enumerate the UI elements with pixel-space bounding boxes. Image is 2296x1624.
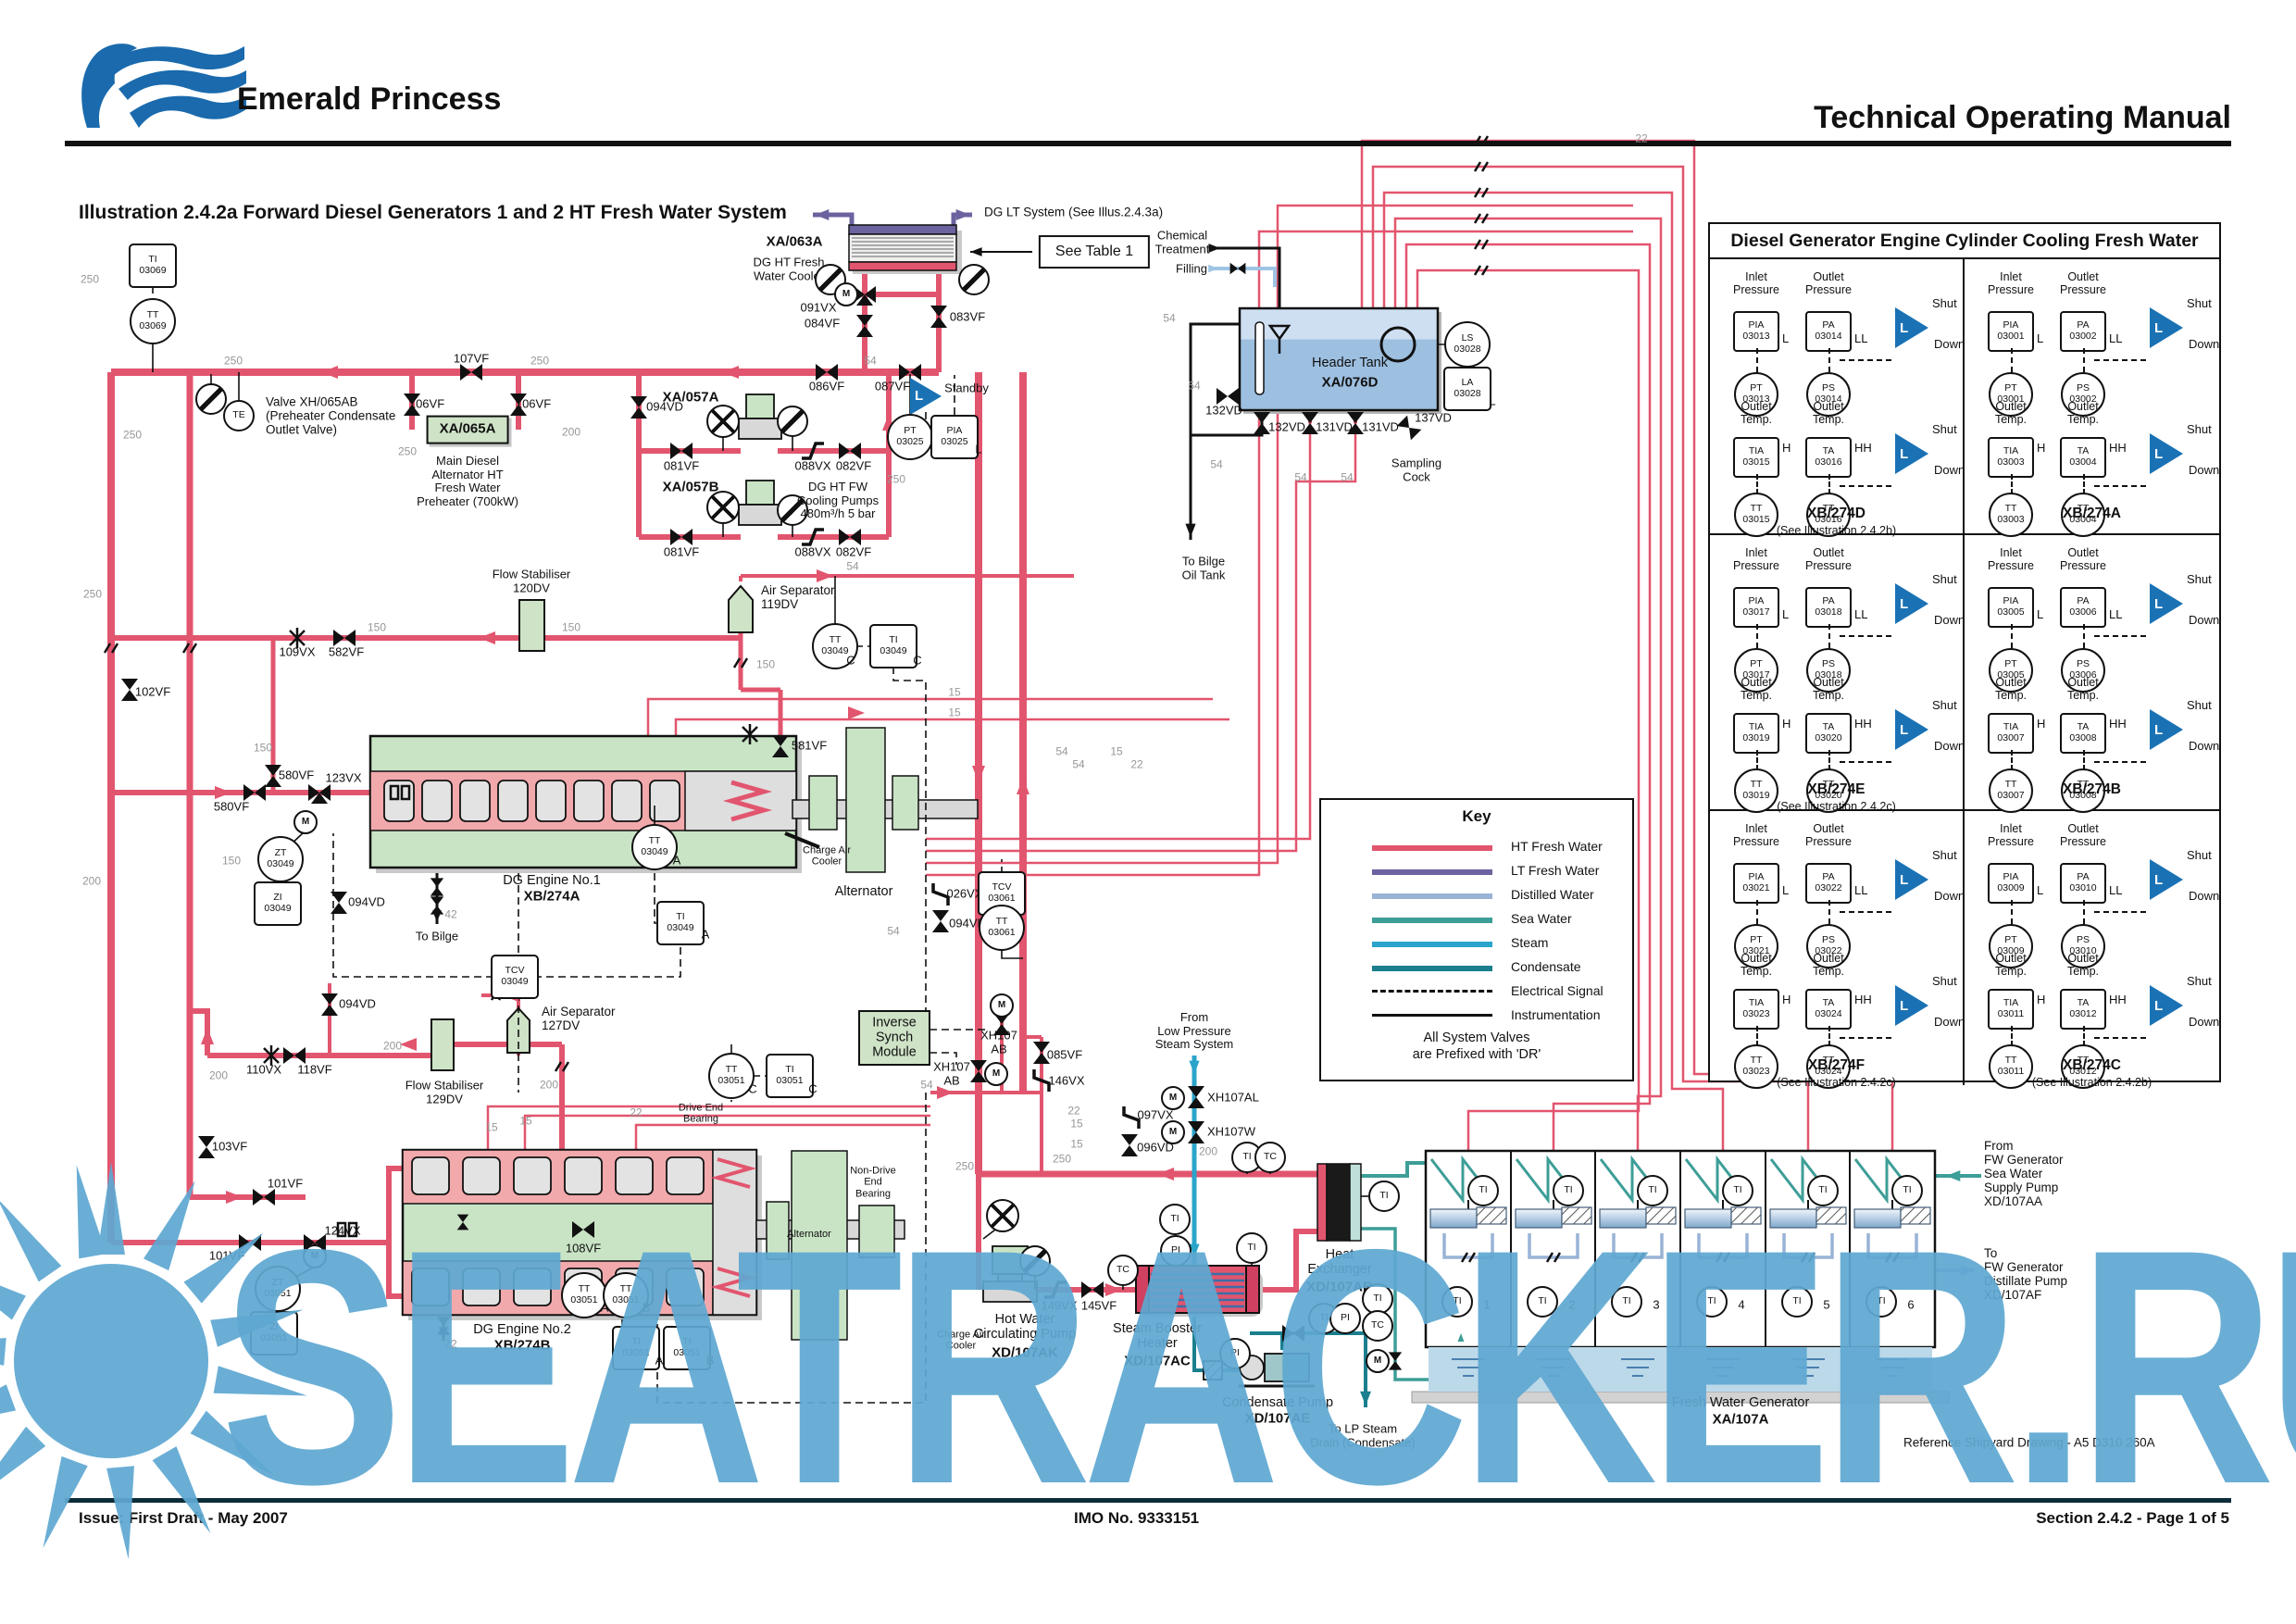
- manual-title: Technical Operating Manual: [1814, 100, 2231, 136]
- panel-cell-xb274c: Inlet Pressure Outlet Pressure PIA 03009…: [1965, 811, 2219, 1085]
- tia-tag: TIA 03019: [1733, 713, 1779, 754]
- key-swatch-sw: [1372, 918, 1492, 923]
- key-title: Key: [1321, 807, 1632, 826]
- pa-tag: PA 03010: [2060, 863, 2106, 904]
- key-swatch-steam: [1372, 942, 1492, 947]
- pa-tag: PA 03006: [2060, 587, 2106, 628]
- key-label: HT Fresh Water: [1511, 839, 1603, 854]
- key-label: LT Fresh Water: [1511, 863, 1599, 878]
- ta-tag: TA 03008: [2060, 713, 2106, 754]
- ta-tag: TA 03016: [1805, 437, 1852, 478]
- panel-cell-xb274d: Inlet Pressure Outlet Pressure PIA 03013…: [1710, 259, 1965, 535]
- key-label: Distilled Water: [1511, 887, 1594, 902]
- shutdown-triangle: L: [1895, 433, 1928, 474]
- key-swatch-lt: [1372, 869, 1492, 875]
- pa-tag: PA 03022: [1805, 863, 1852, 904]
- key-swatch-dw: [1372, 893, 1492, 899]
- shutdown-triangle: L: [1895, 583, 1928, 624]
- key-label: Electrical Signal: [1511, 983, 1603, 998]
- engine-code: XB/274E: [1710, 781, 1963, 798]
- princess-cruises-logo: [76, 43, 252, 135]
- engine-code: XB/274F: [1710, 1057, 1963, 1074]
- key-label: Condensate: [1511, 959, 1581, 974]
- tia-tag: TIA 03023: [1733, 989, 1779, 1030]
- key-label: Steam: [1511, 935, 1548, 950]
- shutdown-triangle: L: [2150, 307, 2183, 348]
- ta-tag: TA 03020: [1805, 713, 1852, 754]
- tia-tag: TIA 03011: [1988, 989, 2034, 1030]
- shutdown-triangle: L: [2150, 985, 2183, 1026]
- pia-tag: PIA 03009: [1988, 863, 2034, 904]
- pa-tag: PA 03018: [1805, 587, 1852, 628]
- shutdown-triangle: L: [2150, 859, 2183, 900]
- pia-tag: PIA 03013: [1733, 311, 1779, 352]
- shutdown-triangle: L: [1895, 985, 1928, 1026]
- footer-imo: IMO No. 9333151: [1074, 1509, 1199, 1528]
- ship-name: Emerald Princess: [237, 81, 501, 118]
- engine-code: XB/274D: [1710, 506, 1963, 522]
- header-rule: [65, 141, 2231, 146]
- footer-section: Section 2.4.2 - Page 1 of 5: [2036, 1509, 2229, 1528]
- panel-cell-xb274f: Inlet Pressure Outlet Pressure PIA 03021…: [1710, 811, 1965, 1085]
- key-swatch-elec: [1372, 990, 1492, 993]
- illustration-title: Illustration 2.4.2a Forward Diesel Gener…: [79, 202, 787, 224]
- pia-tag: PIA 03005: [1988, 587, 2034, 628]
- pia-tag: PIA 03021: [1733, 863, 1779, 904]
- ta-tag: TA 03024: [1805, 989, 1852, 1030]
- ta-tag: TA 03012: [2060, 989, 2106, 1030]
- engine-code: XB/274C: [1965, 1057, 2219, 1074]
- shutdown-triangle: L: [1895, 307, 1928, 348]
- shutdown-triangle: L: [1895, 859, 1928, 900]
- engine-code: XB/274A: [1965, 506, 2219, 522]
- key-label: Sea Water: [1511, 911, 1572, 926]
- shutdown-triangle: L: [2150, 433, 2183, 474]
- pa-tag: PA 03002: [2060, 311, 2106, 352]
- cooling-fw-panel: Diesel Generator Engine Cylinder Cooling…: [1708, 222, 2221, 1082]
- footer-rule: [65, 1498, 2231, 1503]
- pia-tag: PIA 03017: [1733, 587, 1779, 628]
- key-swatch-ht: [1372, 845, 1492, 851]
- tia-tag: TIA 03007: [1988, 713, 2034, 754]
- page: Emerald Princess Technical Operating Man…: [0, 0, 2296, 1624]
- see-ref: (See Illustration 2.4.2c): [1710, 1076, 1963, 1089]
- panel-title: Diesel Generator Engine Cylinder Cooling…: [1710, 224, 2219, 259]
- ta-tag: TA 03004: [2060, 437, 2106, 478]
- pia-tag: PIA 03001: [1988, 311, 2034, 352]
- key-swatch-cond: [1372, 966, 1492, 971]
- panel-cell-xb274a: Inlet Pressure Outlet Pressure PIA 03001…: [1965, 259, 2219, 535]
- see-ref: (See Illustration 2.4.2b): [1965, 1076, 2219, 1089]
- tia-tag: TIA 03015: [1733, 437, 1779, 478]
- shutdown-triangle: L: [2150, 583, 2183, 624]
- key-note: All System Valves are Prefixed with 'DR': [1321, 1030, 1632, 1063]
- key-legend: Key HT Fresh Water LT Fresh Water Distil…: [1319, 798, 1634, 1081]
- shutdown-triangle: L: [1895, 709, 1928, 750]
- pa-tag: PA 03014: [1805, 311, 1852, 352]
- engine-code: XB/274B: [1965, 781, 2219, 798]
- panel-cell-xb274b: Inlet Pressure Outlet Pressure PIA 03005…: [1965, 535, 2219, 811]
- footer-issue: Issue: First Draft - May 2007: [79, 1509, 288, 1528]
- tia-tag: TIA 03003: [1988, 437, 2034, 478]
- panel-cell-xb274e: Inlet Pressure Outlet Pressure PIA 03017…: [1710, 535, 1965, 811]
- shutdown-triangle: L: [2150, 709, 2183, 750]
- key-label: Instrumentation: [1511, 1007, 1601, 1022]
- key-swatch-instr: [1372, 1014, 1492, 1017]
